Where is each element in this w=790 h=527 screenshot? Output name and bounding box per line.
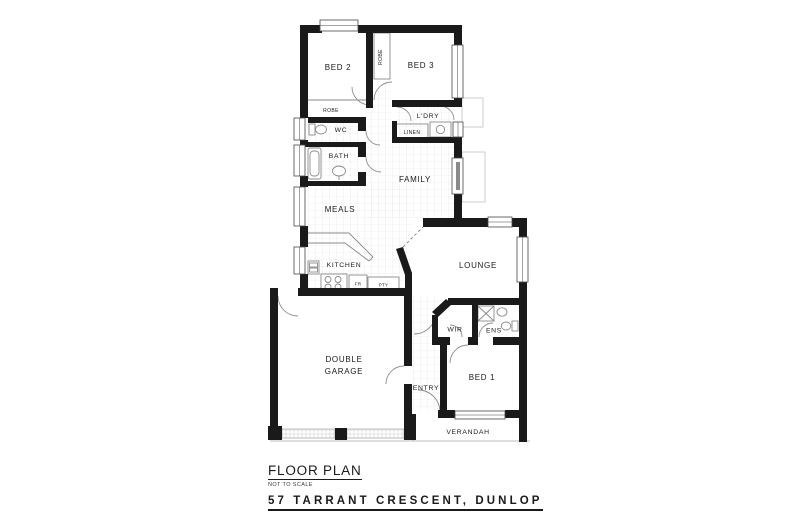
bathtub [308, 148, 321, 179]
room-label-meals: MEALS [325, 205, 356, 214]
ens-basin [497, 308, 507, 316]
floor-plan-page: BED 2 ROBE BED 3 ROBE WC L'DRY LINEN BAT… [0, 0, 790, 527]
room-label-family: FAMILY [399, 175, 431, 184]
room-label-garage-line1: DOUBLE [325, 355, 362, 364]
room-label-bed1: BED 1 [469, 373, 496, 382]
family-sliding-door [452, 158, 463, 194]
bed3-window [452, 45, 463, 98]
wc-toilet [309, 124, 327, 135]
room-label-fridge: FR [355, 282, 362, 287]
room-label-verandah: VERANDAH [446, 429, 489, 436]
lounge-top-window [488, 217, 512, 227]
outdoor-structures [462, 98, 485, 202]
room-label-lounge: LOUNGE [459, 261, 497, 270]
plan-address: 57 TARRANT CRESCENT, DUNLOP [268, 495, 543, 511]
room-label-bed3: BED 3 [408, 61, 435, 70]
laundry-window [453, 122, 463, 137]
room-label-garage-line2: GARAGE [325, 367, 363, 376]
bath-window [294, 145, 305, 176]
bed1-door-arc [450, 345, 468, 363]
floor-plan-drawing: BED 2 ROBE BED 3 ROBE WC L'DRY LINEN BAT… [0, 0, 790, 527]
room-label-bed2: BED 2 [325, 63, 352, 72]
plan-heading: FLOOR PLAN [268, 464, 362, 480]
meals-window [294, 187, 305, 226]
kitchen-stove [321, 274, 347, 290]
bed2-window [320, 20, 358, 31]
room-label-robe-bed2: ROBE [323, 108, 339, 114]
room-label-kitchen: KITCHEN [327, 262, 362, 269]
bed1-window [455, 411, 505, 419]
room-label-linen: LINEN [404, 130, 421, 136]
room-label-laundry: L'DRY [417, 113, 440, 120]
kitchen-sink [308, 261, 319, 274]
room-label-ens: ENS [486, 328, 502, 335]
laundry-trough [430, 122, 451, 137]
room-label-wir: WIR [447, 327, 462, 334]
room-label-pantry: PTY [379, 283, 389, 288]
title-block: FLOOR PLAN NOT TO SCALE 57 TARRANT CRESC… [268, 462, 543, 511]
garage-entry-door-arc [386, 366, 404, 384]
kitchen-window [294, 247, 305, 274]
ens-shower [478, 306, 494, 321]
ens-toilet [501, 321, 518, 331]
room-label-entry: ENTRY [413, 385, 439, 392]
room-label-wc: WC [335, 127, 348, 134]
wc-window [294, 118, 305, 140]
garage-internal-door-arc [278, 296, 298, 316]
room-label-bath: BATH [329, 153, 349, 160]
room-label-robe-between: ROBE [378, 49, 384, 65]
lounge-right-window [517, 237, 528, 282]
